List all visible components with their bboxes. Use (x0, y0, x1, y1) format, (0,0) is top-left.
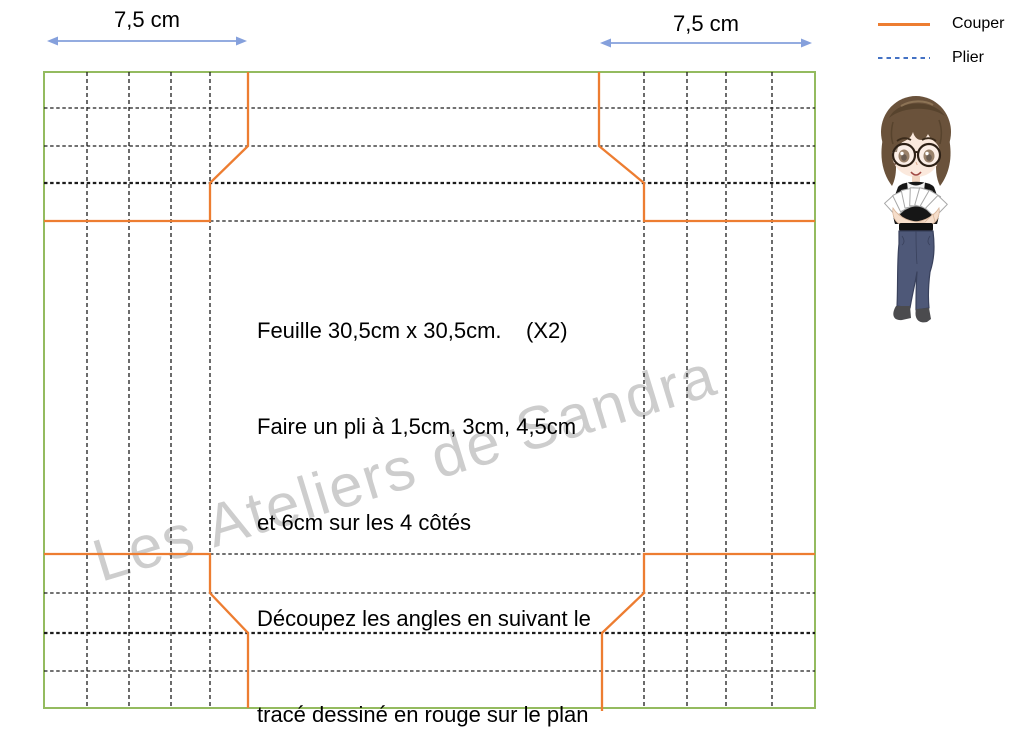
instruction-line: Feuille 30,5cm x 30,5cm. (X2) (257, 315, 591, 347)
arrow-right-head-icon (236, 37, 247, 46)
dimension-label-right: 7,5 cm (600, 11, 812, 37)
mascot-jeans (897, 231, 934, 310)
legend-cut-label: Couper (952, 15, 1004, 33)
instruction-line: Découpez les angles en suivant le (257, 603, 591, 635)
legend-fold-label: Plier (952, 49, 984, 67)
instruction-line: et 6cm sur les 4 côtés (257, 507, 591, 539)
legend-fold-row: Plier (878, 47, 1004, 69)
dimension-arrows (47, 37, 812, 48)
instruction-line: Faire un pli à 1,5cm, 3cm, 4,5cm (257, 411, 591, 443)
legend: Couper Plier (878, 13, 1004, 81)
instructions: Feuille 30,5cm x 30,5cm. (X2) Faire un p… (257, 251, 591, 736)
legend-cut-row: Couper (878, 13, 1004, 35)
dimension-label-left: 7,5 cm (47, 7, 247, 33)
fold-line-sample-icon (878, 57, 930, 60)
cut-line-sample-icon (878, 23, 930, 26)
instruction-line: tracé dessiné en rouge sur le plan (257, 699, 591, 731)
arrow-right-head-icon (801, 39, 812, 48)
arrow-left-head-icon (600, 39, 611, 48)
mascot-shoes (893, 306, 931, 322)
mascot-illustration (870, 92, 964, 332)
mascot-body (885, 176, 948, 231)
pattern-sheet: Les Ateliers de Sandra 7,5 cm 7,5 cm Feu… (0, 0, 1024, 736)
arrow-left-head-icon (47, 37, 58, 46)
